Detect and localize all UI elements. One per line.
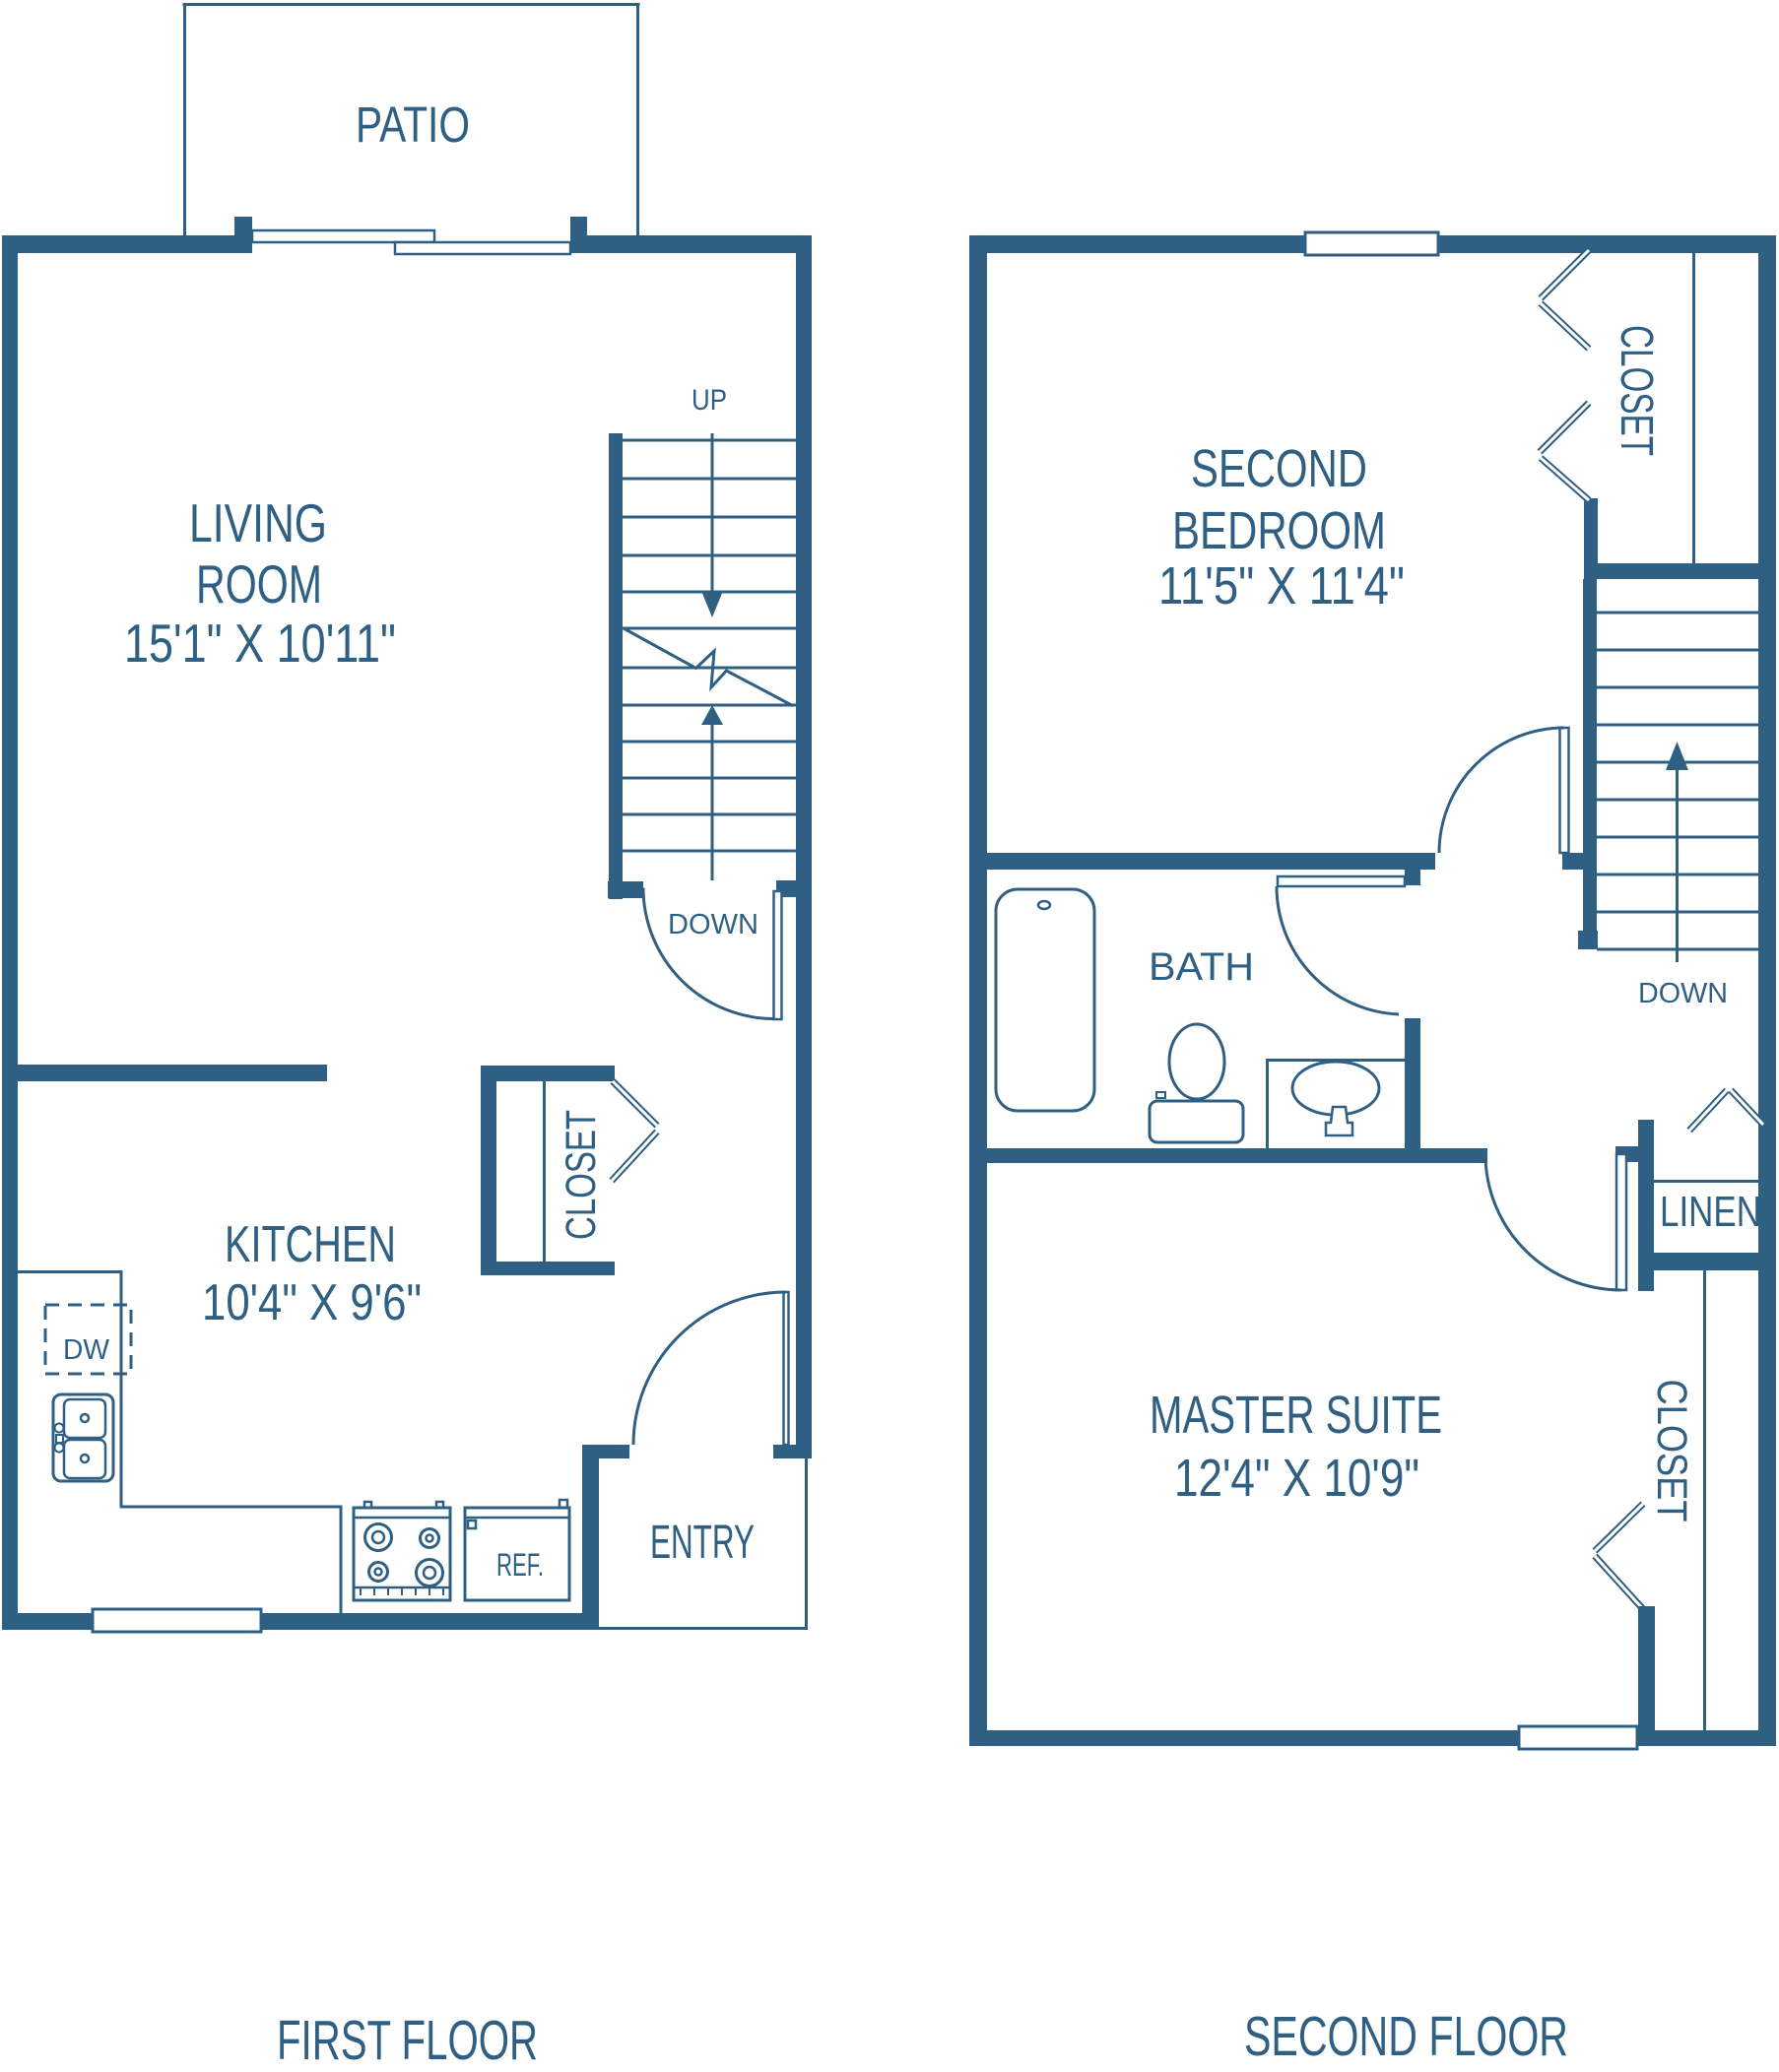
svg-text:CLOSET: CLOSET [558,1110,605,1240]
svg-text:CLOSET: CLOSET [1648,1380,1695,1522]
svg-text:KITCHEN: KITCHEN [225,1216,396,1273]
svg-text:ROOM: ROOM [196,553,322,615]
svg-text:DOWN: DOWN [668,909,758,940]
svg-text:12'4" X 10'9": 12'4" X 10'9" [1174,1449,1419,1508]
svg-text:LINEN: LINEN [1660,1188,1761,1236]
svg-text:MASTER SUITE: MASTER SUITE [1150,1386,1442,1445]
svg-text:BATH: BATH [1149,945,1254,989]
svg-text:DW: DW [63,1334,110,1366]
svg-text:REF.: REF. [496,1547,544,1583]
svg-text:UP: UP [692,384,727,417]
svg-text:DOWN: DOWN [1638,978,1728,1009]
svg-text:11'5" X 11'4": 11'5" X 11'4" [1158,556,1405,615]
svg-text:SECOND FLOOR: SECOND FLOOR [1244,2005,1568,2068]
svg-text:CLOSET: CLOSET [1612,325,1663,456]
svg-text:FIRST FLOOR: FIRST FLOOR [277,2009,538,2072]
svg-text:15'1" X 10'11": 15'1" X 10'11" [124,613,396,674]
svg-text:SECOND: SECOND [1191,439,1367,498]
svg-text:BEDROOM: BEDROOM [1172,501,1386,560]
svg-text:10'4" X 9'6": 10'4" X 9'6" [202,1274,422,1331]
svg-text:PATIO: PATIO [356,97,470,153]
svg-text:LIVING: LIVING [189,492,327,553]
svg-text:ENTRY: ENTRY [650,1517,755,1569]
